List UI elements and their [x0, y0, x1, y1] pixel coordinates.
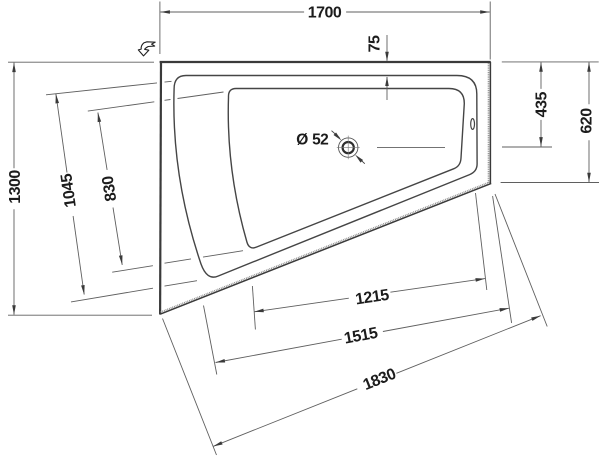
svg-text:830: 830 — [100, 174, 121, 202]
svg-text:1515: 1515 — [343, 325, 380, 348]
svg-text:1215: 1215 — [354, 287, 390, 309]
svg-text:1045: 1045 — [58, 172, 80, 208]
svg-text:1700: 1700 — [308, 5, 342, 22]
svg-text:75: 75 — [366, 35, 383, 52]
svg-text:620: 620 — [579, 108, 596, 134]
svg-text:Ø: Ø — [296, 132, 308, 149]
svg-text:435: 435 — [534, 92, 551, 118]
svg-text:52: 52 — [312, 132, 328, 149]
svg-text:1830: 1830 — [361, 365, 399, 393]
svg-text:1300: 1300 — [7, 170, 24, 204]
